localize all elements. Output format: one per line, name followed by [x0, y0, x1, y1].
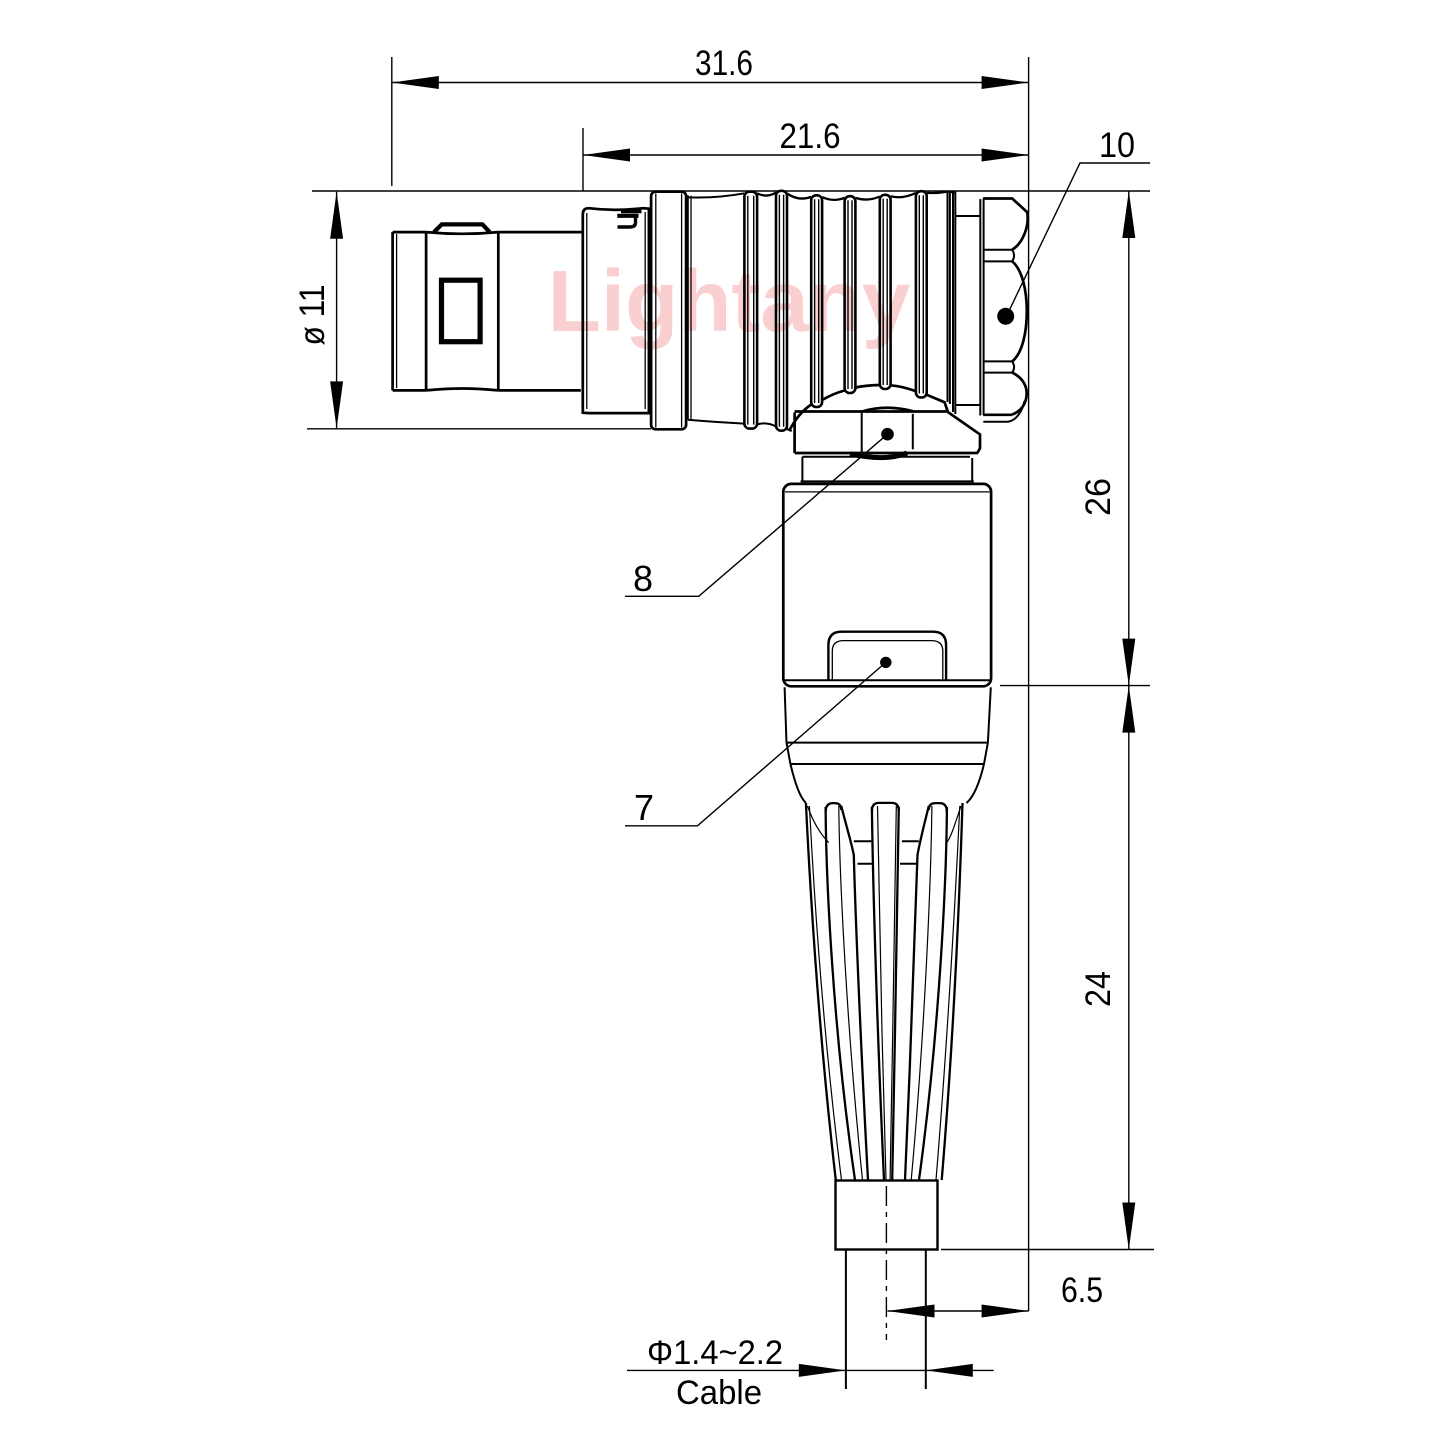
svg-text:21.6: 21.6 [780, 117, 841, 156]
svg-text:7: 7 [634, 787, 654, 828]
svg-text:8: 8 [633, 558, 653, 599]
svg-text:ø 11: ø 11 [293, 285, 332, 346]
svg-text:31.6: 31.6 [695, 44, 753, 83]
svg-text:Cable: Cable [676, 1374, 762, 1412]
svg-text:Φ1.4~2.2: Φ1.4~2.2 [647, 1334, 783, 1372]
svg-text:10: 10 [1099, 126, 1135, 165]
svg-text:24: 24 [1079, 971, 1118, 1007]
svg-text:26: 26 [1079, 478, 1118, 516]
svg-text:6.5: 6.5 [1061, 1271, 1103, 1310]
